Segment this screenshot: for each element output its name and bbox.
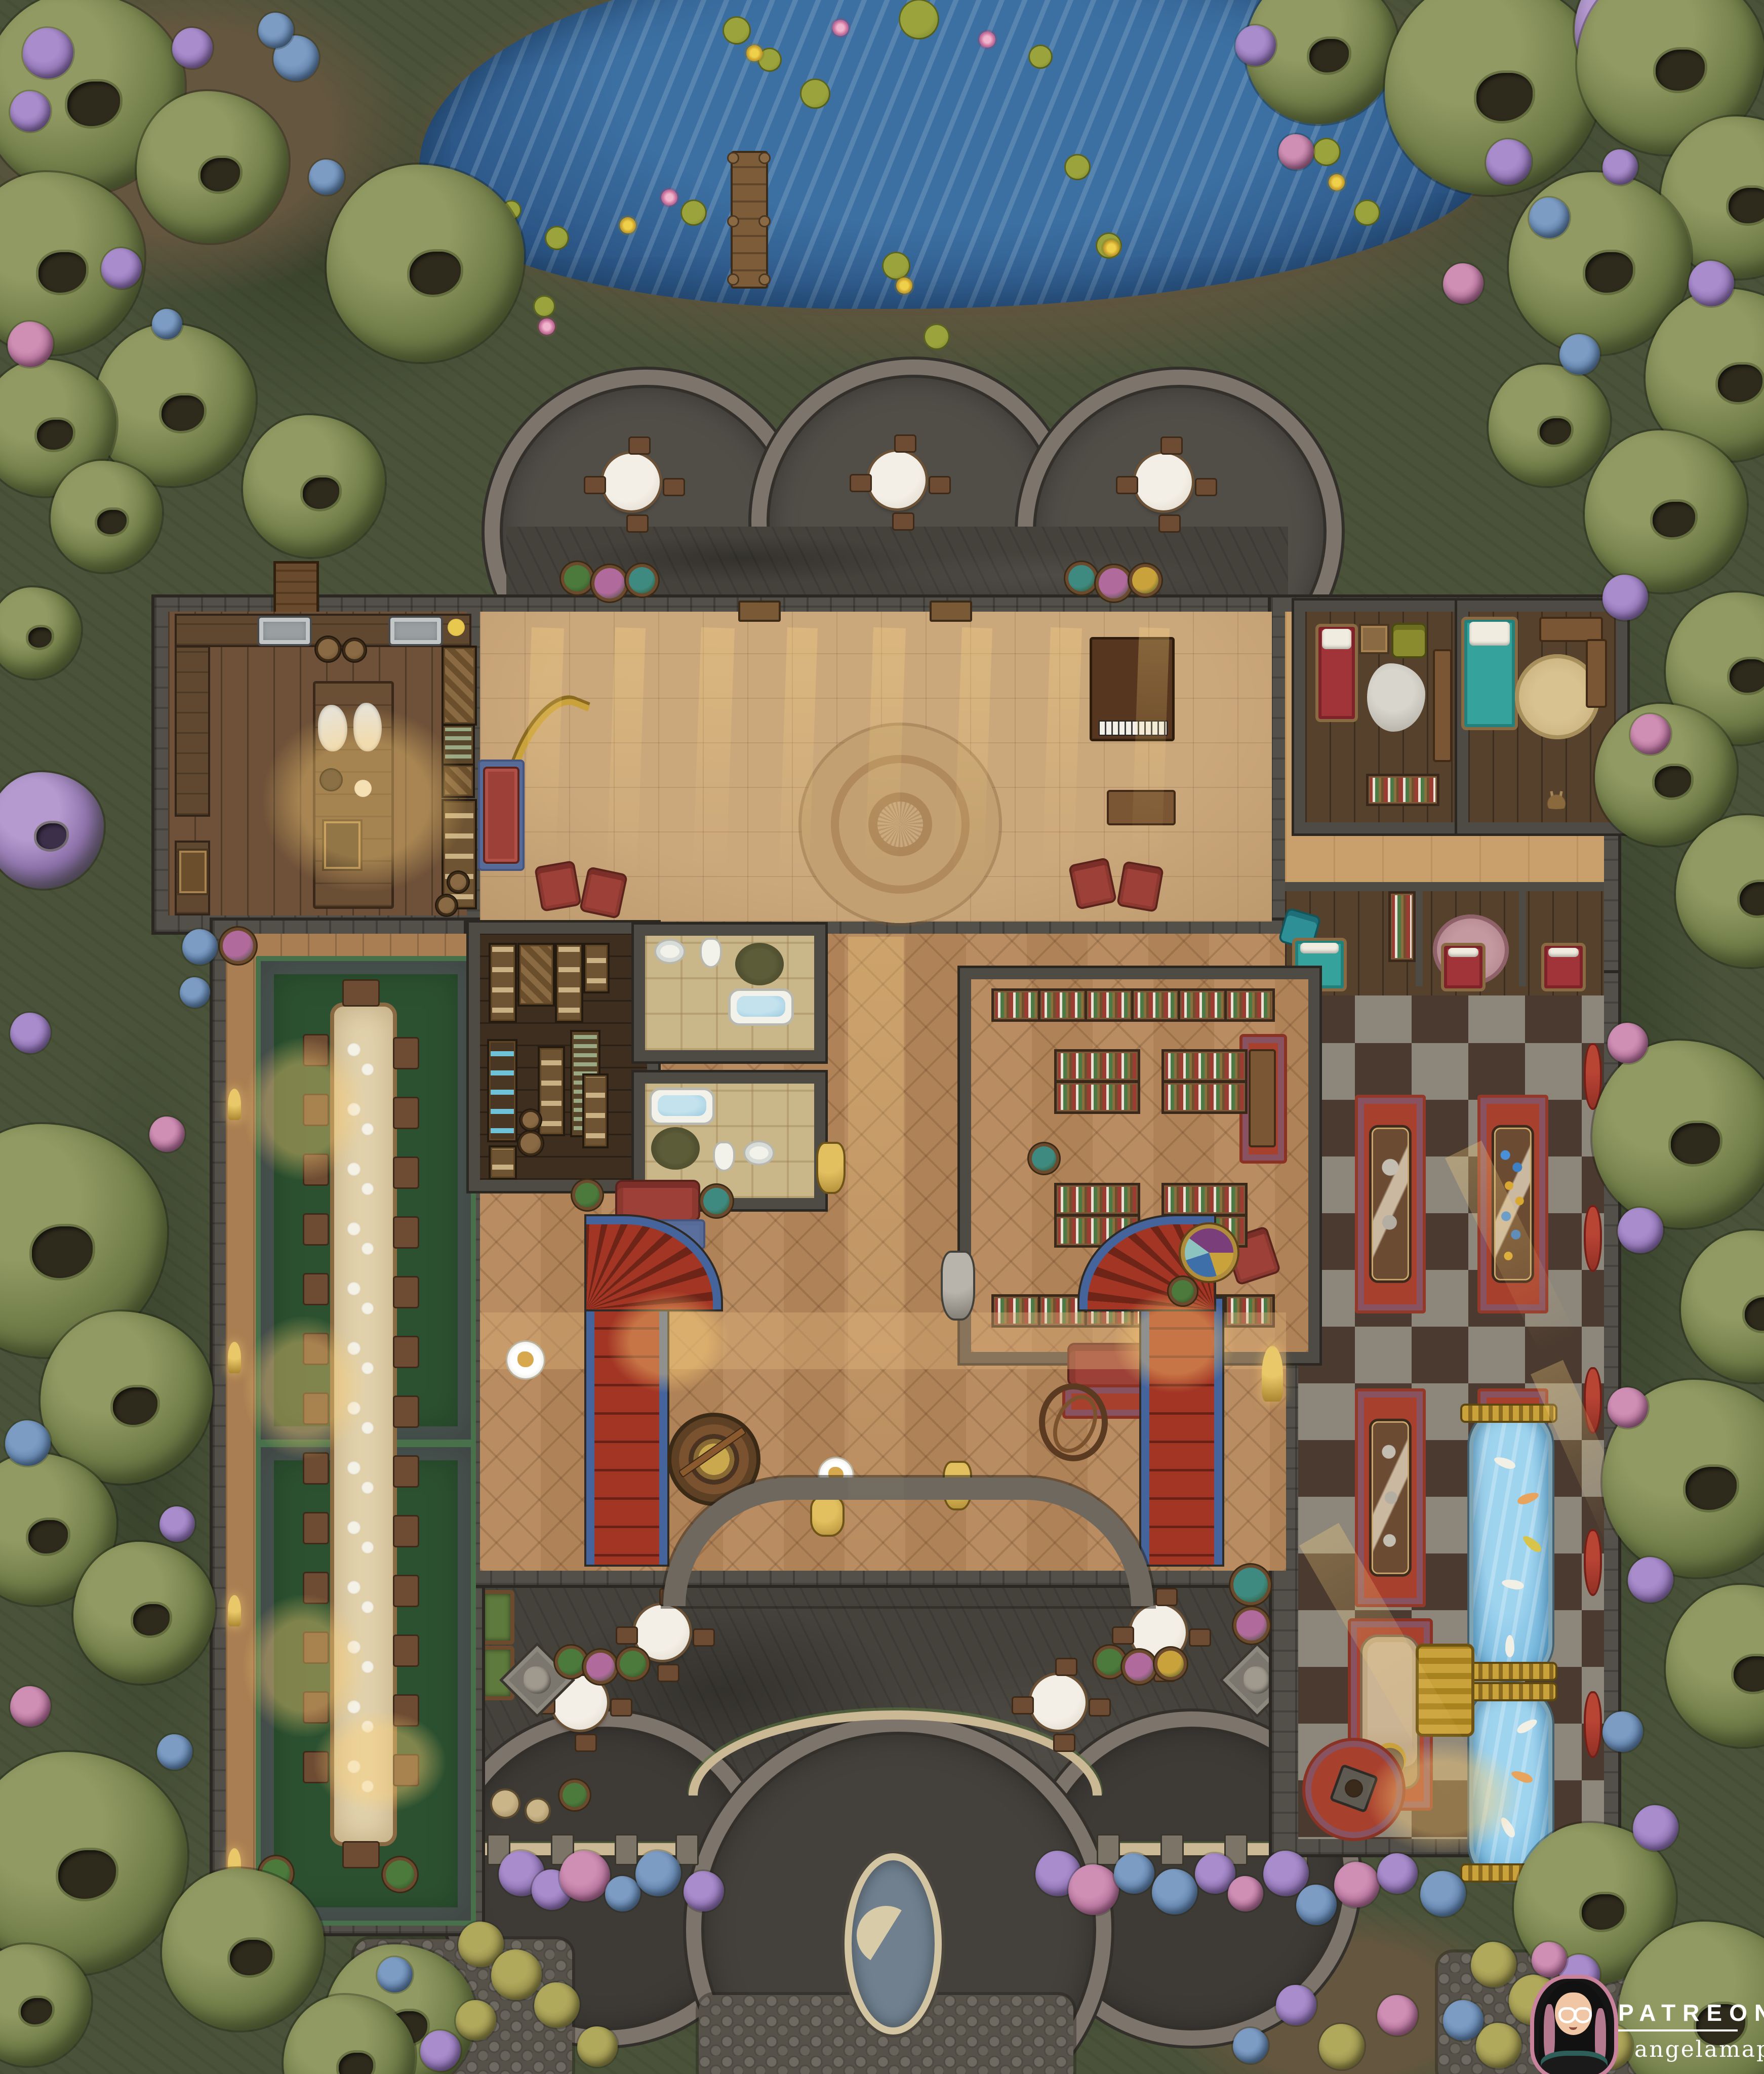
potted-plant-icon <box>620 1651 646 1677</box>
flower-bush-icon <box>420 2030 461 2071</box>
flower-bush-icon <box>309 159 344 195</box>
flower-bush-icon <box>1233 2028 1268 2063</box>
tree-icon <box>243 415 385 557</box>
flower-bush-icon <box>5 1420 51 1466</box>
potted-plant-icon <box>1132 567 1158 593</box>
flower-bush-icon <box>491 1949 542 2000</box>
flower-bush-icon <box>1476 2023 1521 2068</box>
flower-bush-icon <box>1334 1862 1380 1907</box>
tree-icon <box>41 1311 213 1484</box>
flower-bush-icon <box>1618 1208 1663 1253</box>
flower-bush-icon <box>149 1116 185 1152</box>
avatar-frame <box>1530 1975 1618 2074</box>
flower-bush-icon <box>1443 263 1484 304</box>
flower-bush-icon <box>180 977 210 1008</box>
avatar-shirt <box>1541 2051 1608 2074</box>
potted-plant-icon <box>223 931 253 961</box>
flower-bush-icon <box>1377 1853 1418 1894</box>
tree-icon <box>1592 1041 1764 1228</box>
author-name[interactable]: angelamaps <box>1634 2037 1764 2062</box>
flower-bush-icon <box>534 1982 580 2028</box>
flower-bush-icon <box>577 2026 618 2067</box>
potted-plant-icon <box>1099 568 1129 599</box>
flower-bush-icon <box>635 1851 681 1896</box>
potted-plant-icon <box>1125 1653 1153 1681</box>
flower-bush-icon <box>684 1871 724 1911</box>
flower-bush-icon <box>1602 575 1648 620</box>
potted-plant-icon <box>1097 1649 1123 1675</box>
flower-bush-icon <box>377 1957 413 1992</box>
patreon-wordmark[interactable]: PATREON <box>1618 1999 1764 2026</box>
flower-bush-icon <box>1068 1864 1119 1915</box>
potted-plant-icon <box>1236 1610 1267 1641</box>
flower-bush-icon <box>101 248 142 289</box>
potted-plant-icon <box>1157 1651 1184 1677</box>
flower-bush-icon <box>1276 1985 1316 2025</box>
flower-bush-icon <box>1559 334 1600 375</box>
flower-bush-icon <box>152 309 182 339</box>
flower-bush-icon <box>182 929 218 965</box>
potted-plant-icon <box>1032 1146 1056 1171</box>
flower-bush-icon <box>258 13 294 48</box>
flower-bush-icon <box>1471 1942 1516 1987</box>
avatar-glasses <box>1574 2007 1592 2023</box>
tree-icon <box>327 165 524 362</box>
watermark-divider <box>1618 2029 1738 2031</box>
tree-icon <box>1489 365 1610 486</box>
potted-plant-icon <box>1068 565 1095 591</box>
flower-bush-icon <box>1529 197 1570 238</box>
flower-bush-icon <box>1608 1023 1648 1063</box>
potted-plant-icon <box>629 567 655 593</box>
flower-bush-icon <box>10 1686 51 1727</box>
potted-plant-icon <box>703 1188 730 1214</box>
flower-bush-icon <box>1628 1557 1673 1603</box>
flower-bush-icon <box>456 2000 496 2041</box>
watermark: PATREON angelamaps <box>1519 1970 1764 2074</box>
battle-map: PATREON angelamaps <box>0 0 1764 2074</box>
avatar-glasses <box>1558 2007 1576 2023</box>
flower-bush-icon <box>10 1013 51 1053</box>
flower-bush-icon <box>1278 134 1314 170</box>
potted-plant-icon <box>386 1860 414 1889</box>
flower-bush-icon <box>1114 1853 1154 1894</box>
potted-plant-icon <box>558 1649 584 1675</box>
tree-icon <box>51 461 162 572</box>
flower-bush-icon <box>1319 2024 1365 2069</box>
author-avatar <box>1530 1975 1610 2072</box>
flower-bush-icon <box>1443 2000 1484 2041</box>
tree-icon <box>162 1868 324 2030</box>
flower-bush-icon <box>172 28 213 68</box>
flower-bush-icon <box>1486 139 1532 185</box>
potted-plant-icon <box>563 1783 587 1807</box>
tree-icon <box>1666 1585 1764 1747</box>
flower-bush-icon <box>1263 1851 1309 1896</box>
flower-bush-icon <box>157 1734 192 1770</box>
flower-bush-icon <box>605 1876 640 1911</box>
potted-plant-icon <box>594 568 625 599</box>
flower-bush-icon <box>159 1506 195 1542</box>
potted-plant-icon <box>564 565 590 591</box>
tree-icon <box>1585 430 1747 592</box>
potted-plant-icon <box>586 1653 615 1681</box>
tree-icon <box>0 772 104 889</box>
flower-bush-icon <box>1602 149 1638 185</box>
flower-bush-icon <box>1630 714 1671 754</box>
flower-bush-icon <box>1420 1871 1466 1917</box>
flora-layer <box>0 0 1764 2074</box>
potted-plant-icon <box>1172 1280 1194 1302</box>
tree-icon <box>1246 0 1397 124</box>
flower-bush-icon <box>23 28 73 78</box>
tree-icon <box>94 324 256 486</box>
flower-bush-icon <box>1296 1885 1337 1925</box>
potted-plant-icon <box>575 1183 599 1207</box>
flower-bush-icon <box>1602 1711 1643 1752</box>
flower-bush-icon <box>1235 25 1276 66</box>
tree-icon <box>1681 1230 1764 1382</box>
flower-bush-icon <box>1633 1805 1678 1851</box>
flower-bush-icon <box>1689 261 1734 306</box>
flower-bush-icon <box>559 1851 610 1901</box>
avatar-smile <box>1569 2023 1577 2030</box>
tree-icon <box>0 587 81 679</box>
flower-bush-icon <box>1228 1876 1263 1911</box>
tree-icon <box>137 91 289 243</box>
flower-bush-icon <box>1608 1387 1648 1428</box>
flower-bush-icon <box>1377 1995 1418 2036</box>
tree-icon <box>0 1752 187 1975</box>
flower-bush-icon <box>8 322 53 367</box>
avatar-face <box>1555 1992 1592 2035</box>
flower-bush-icon <box>1152 1869 1197 1915</box>
flower-bush-icon <box>10 91 51 132</box>
tree-icon <box>73 1542 215 1684</box>
potted-plant-icon <box>1233 1568 1268 1602</box>
